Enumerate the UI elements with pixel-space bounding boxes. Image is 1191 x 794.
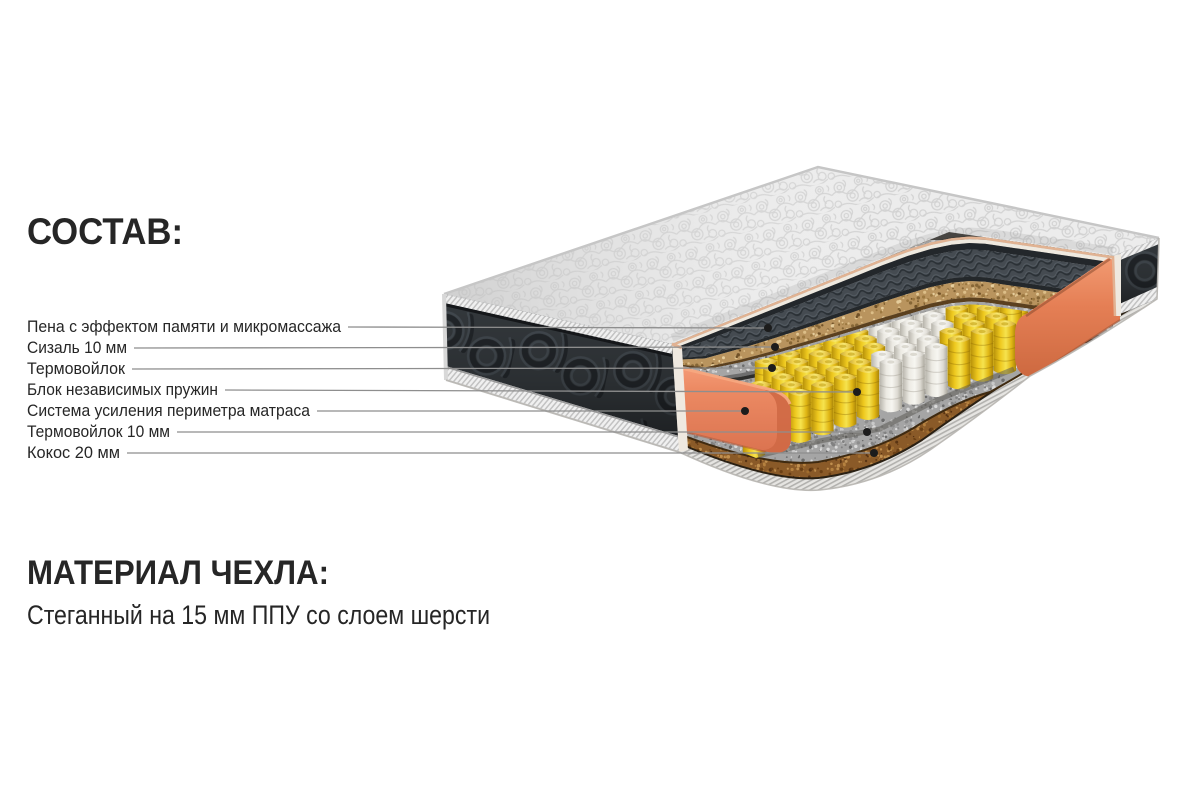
svg-text:Сизаль 10 мм: Сизаль 10 мм [27,339,127,357]
svg-text:Термовойлок: Термовойлок [27,360,126,378]
svg-text:Термовойлок 10 мм: Термовойлок 10 мм [27,423,170,441]
svg-text:Кокос 20 мм: Кокос 20 мм [27,444,120,462]
svg-text:МАТЕРИАЛ ЧЕХЛА:: МАТЕРИАЛ ЧЕХЛА: [27,554,329,592]
svg-text:СОСТАВ:: СОСТАВ: [27,211,183,252]
svg-text:Блок независимых пружин: Блок независимых пружин [27,381,218,399]
svg-text:Стеганный на 15 мм ППУ со слое: Стеганный на 15 мм ППУ со слоем шерсти [27,600,490,630]
svg-text:Пена с эффектом памяти и микро: Пена с эффектом памяти и микромассажа [27,318,342,336]
svg-text:Система усиления периметра мат: Система усиления периметра матраса [27,402,311,420]
